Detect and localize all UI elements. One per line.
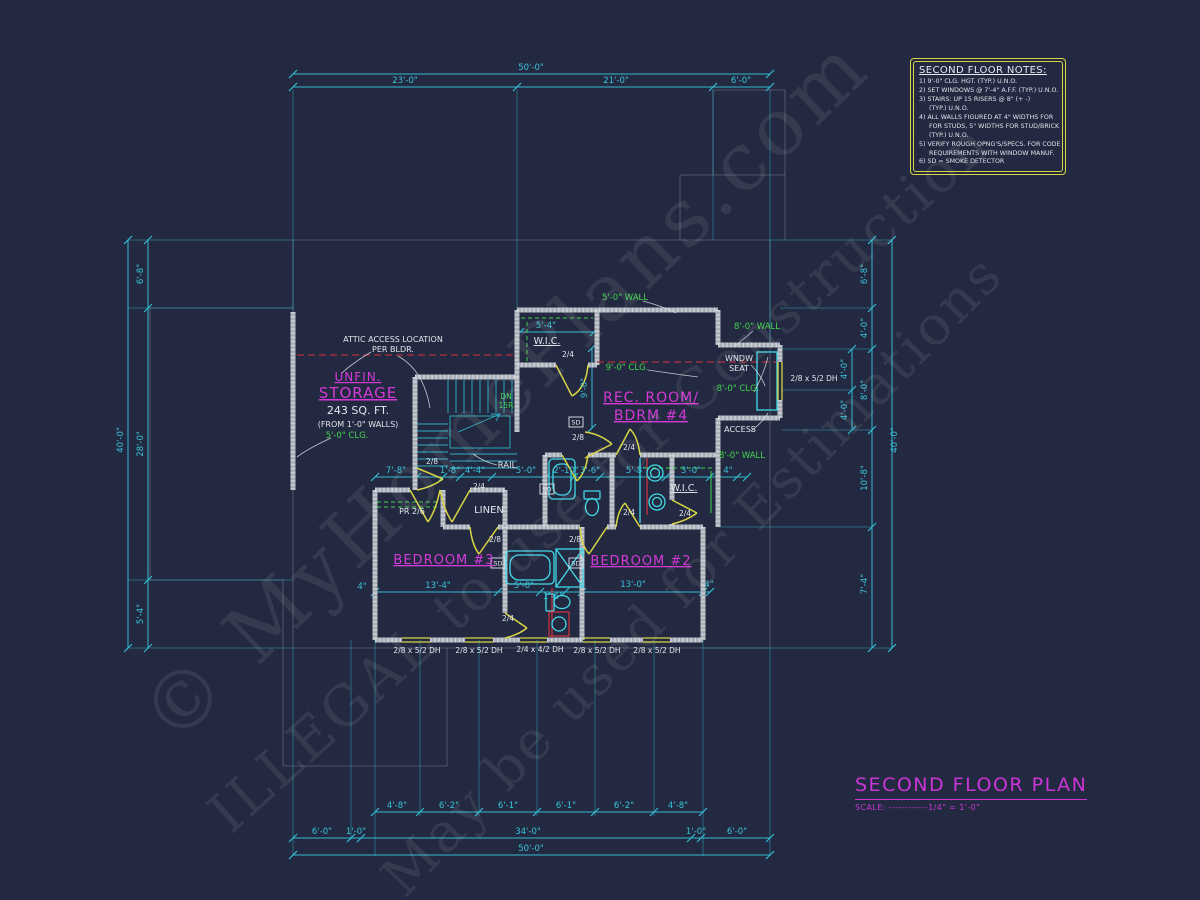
- plan-label: 50'-0": [518, 844, 544, 854]
- note-line: FOR STUDS, 5" WIDTHS FOR STUD/BRICK: [919, 123, 1057, 132]
- plan-label: 8'-0" WALL: [734, 322, 780, 332]
- plan-label: 6'-0": [731, 76, 751, 86]
- note-line: 1) 9'-0" CLG. HGT. (TYP.) U.N.O.: [919, 78, 1057, 87]
- plan-label: 1'-0": [346, 827, 366, 837]
- note-line: 4) ALL WALLS FIGURED AT 4" WIDTHS FOR: [919, 114, 1057, 123]
- door-swing: [589, 527, 607, 554]
- smoke-detector-label: SD: [571, 419, 580, 427]
- plan-label: 2/8 x 5/2 DH: [455, 646, 502, 655]
- plan-title: SECOND FLOOR PLAN: [855, 774, 1087, 800]
- door-swing: [428, 490, 440, 522]
- plan-label: 28'-0": [136, 431, 146, 457]
- plan-label: 5'-0": [514, 581, 534, 591]
- door-swing: [505, 628, 527, 638]
- plan-label: 5'-4": [536, 321, 556, 331]
- door-swing: [556, 365, 572, 396]
- plan-label: 6'-0": [312, 827, 332, 837]
- plan-label: ATTIC ACCESS LOCATION: [343, 335, 443, 344]
- plan-label: 2'-10": [553, 466, 579, 476]
- plan-label: BEDROOM #3: [393, 553, 494, 568]
- door-swing: [470, 527, 479, 554]
- sink: [651, 469, 660, 478]
- plan-label: W.I.C.: [671, 483, 698, 494]
- plan-scale: SCALE: ------------1/4" = 1'-0": [855, 803, 1087, 812]
- plan-label: 2/4: [623, 508, 635, 517]
- plan-label: UNFIN.: [335, 370, 382, 384]
- bathtub: [510, 555, 550, 580]
- plan-label: RAIL: [498, 461, 517, 471]
- second-floor-notes-box: SECOND FLOOR NOTES: 1) 9'-0" CLG. HGT. (…: [910, 58, 1066, 175]
- plan-label: 6'-1": [556, 801, 576, 811]
- plan-label: 2/8: [489, 535, 501, 544]
- plan-label: 40'-0": [116, 427, 126, 453]
- title-block: SECOND FLOOR PLAN SCALE: ------------1/4…: [855, 774, 1087, 812]
- plan-label: DN: [500, 392, 511, 401]
- smoke-detector-label: SD: [542, 486, 551, 494]
- plan-label: 15R: [499, 401, 514, 410]
- notes-inner-border: SECOND FLOOR NOTES: 1) 9'-0" CLG. HGT. (…: [913, 61, 1063, 172]
- plan-label: 2/8 x 5/2 DH: [393, 646, 440, 655]
- plan-label: 2/4: [502, 614, 514, 623]
- plan-label: 3'-6": [580, 466, 600, 476]
- toilet-bowl: [586, 499, 599, 516]
- plan-label: 2/8 x 5/2 DH: [633, 646, 680, 655]
- plan-label: LINEN: [474, 505, 504, 516]
- smoke-detector-label: SD: [571, 560, 580, 568]
- plan-label: 2/8 x 5/2 DH: [573, 646, 620, 655]
- plan-label: 10'-8": [860, 465, 870, 491]
- door-swing: [585, 432, 612, 444]
- plan-label: 1'-8": [440, 466, 460, 476]
- plan-label: 8'-0" CLG.: [717, 384, 760, 394]
- plan-label: 34'-0": [515, 827, 541, 837]
- plan-label: 5'-0" CLG.: [326, 431, 369, 441]
- plan-label: 2/4: [623, 443, 635, 452]
- plan-label: 4'-0": [860, 318, 870, 338]
- door-swing: [410, 490, 428, 522]
- plan-label: 6'-0": [727, 827, 747, 837]
- plan-label: 2/8: [572, 433, 584, 442]
- plan-label: BEDROOM #2: [590, 554, 691, 569]
- notes-title: SECOND FLOOR NOTES:: [919, 65, 1057, 76]
- note-line: (TYP.) U.N.O.: [919, 132, 1057, 141]
- plan-label: 5'-0" WALL: [602, 293, 648, 303]
- plan-label: 21'-0": [603, 76, 629, 86]
- smoke-detector-label: SD: [493, 560, 502, 568]
- plan-label: 1'-6": [543, 592, 563, 602]
- plan-label: 2/4: [473, 482, 485, 491]
- plan-label: WNDW: [725, 354, 753, 363]
- plan-label: 40'-0": [890, 427, 900, 453]
- sink: [552, 617, 566, 631]
- plan-label: 7'-4": [860, 574, 870, 594]
- plan-label: 5'-4": [136, 604, 146, 624]
- sink: [647, 465, 663, 481]
- plan-label: 243 SQ. FT.: [327, 404, 389, 417]
- plan-label: REC. ROOM/: [603, 390, 699, 406]
- plan-label: 8'-0" WALL: [719, 451, 765, 461]
- plan-label: 8'-0": [860, 380, 870, 400]
- plan-label: 5'-8": [626, 466, 646, 476]
- plan-label: 6'-8": [136, 264, 146, 284]
- sink: [653, 498, 662, 507]
- plan-label: 2/4 x 4/2 DH: [516, 645, 563, 654]
- plan-label: 9'-0" CLG.: [606, 363, 649, 373]
- note-line: 6) SD = SMOKE DETECTOR: [919, 158, 1057, 167]
- plan-label: PER BLDR.: [372, 345, 414, 354]
- plan-label: 1'-0": [686, 827, 706, 837]
- notes-list: 1) 9'-0" CLG. HGT. (TYP.) U.N.O.2) SET W…: [919, 78, 1057, 167]
- plan-label: BDRM #4: [614, 408, 688, 424]
- plan-label: 6'-1": [498, 801, 518, 811]
- plan-label: (FROM 1'-0" WALLS): [318, 420, 399, 429]
- blueprint-page: SDSDSDSD50'-0"23'-0"21'-0"6'-0"4'-8"6'-2…: [0, 0, 1200, 900]
- leader-line: [473, 454, 497, 465]
- plan-label: 5'-0": [516, 466, 536, 476]
- note-line: 3) STAIRS: UP 15 RISERS @ 8" (+ -): [919, 96, 1057, 105]
- plan-label: W.I.C.: [534, 336, 561, 347]
- plan-label: 4'-8": [668, 801, 688, 811]
- plan-label: 50'-0": [518, 63, 544, 73]
- plan-label: 2/4: [562, 350, 574, 359]
- plan-label: STORAGE: [319, 384, 397, 402]
- note-line: (TYP.) U.N.O.: [919, 105, 1057, 114]
- plan-label: 2/8: [569, 535, 581, 544]
- plan-label: 9'-0": [580, 378, 590, 398]
- stair-direction-arrow: [458, 414, 500, 432]
- plan-label: 6'-8": [860, 264, 870, 284]
- plan-label: 3'-0": [681, 466, 701, 476]
- plan-label: 4'-0": [840, 359, 850, 379]
- toilet-tank: [584, 491, 600, 499]
- bathtub: [506, 551, 554, 584]
- plan-label: 6'-2": [439, 801, 459, 811]
- plan-label: 2/4: [679, 509, 691, 518]
- plan-label: 4'-8": [387, 801, 407, 811]
- door-swing: [452, 490, 470, 522]
- plan-label: 4'-4": [465, 466, 485, 476]
- plan-label: 4": [704, 580, 713, 590]
- plan-label: 13'-4": [425, 581, 451, 591]
- note-line: REQUIREMENTS WITH WINDOW MANUF.: [919, 150, 1057, 159]
- plan-label: SEAT: [729, 364, 749, 373]
- plan-label: 4": [723, 466, 732, 476]
- sink: [649, 494, 665, 510]
- plan-label: 4": [357, 582, 366, 592]
- note-line: 5) VERIFY ROUGH OPNG'S/SPECS. FOR CODE: [919, 141, 1057, 150]
- plan-label: 2/8: [426, 457, 438, 466]
- plan-label: ACCESS: [724, 425, 756, 434]
- plan-label: 2/8 x 5/2 DH: [790, 374, 837, 383]
- plan-label: 23'-0": [392, 76, 418, 86]
- note-line: 2) SET WINDOWS @ 7'-4" A.F.F. (TYP.) U.N…: [919, 87, 1057, 96]
- leader-line: [648, 370, 698, 377]
- plan-label: 4'-0": [840, 400, 850, 420]
- plan-label: PR 2/6: [399, 507, 425, 516]
- plan-label: 13'-0": [620, 580, 646, 590]
- plan-label: 7'-8": [386, 466, 406, 476]
- plan-label: 6'-2": [614, 801, 634, 811]
- leader-line: [751, 365, 765, 386]
